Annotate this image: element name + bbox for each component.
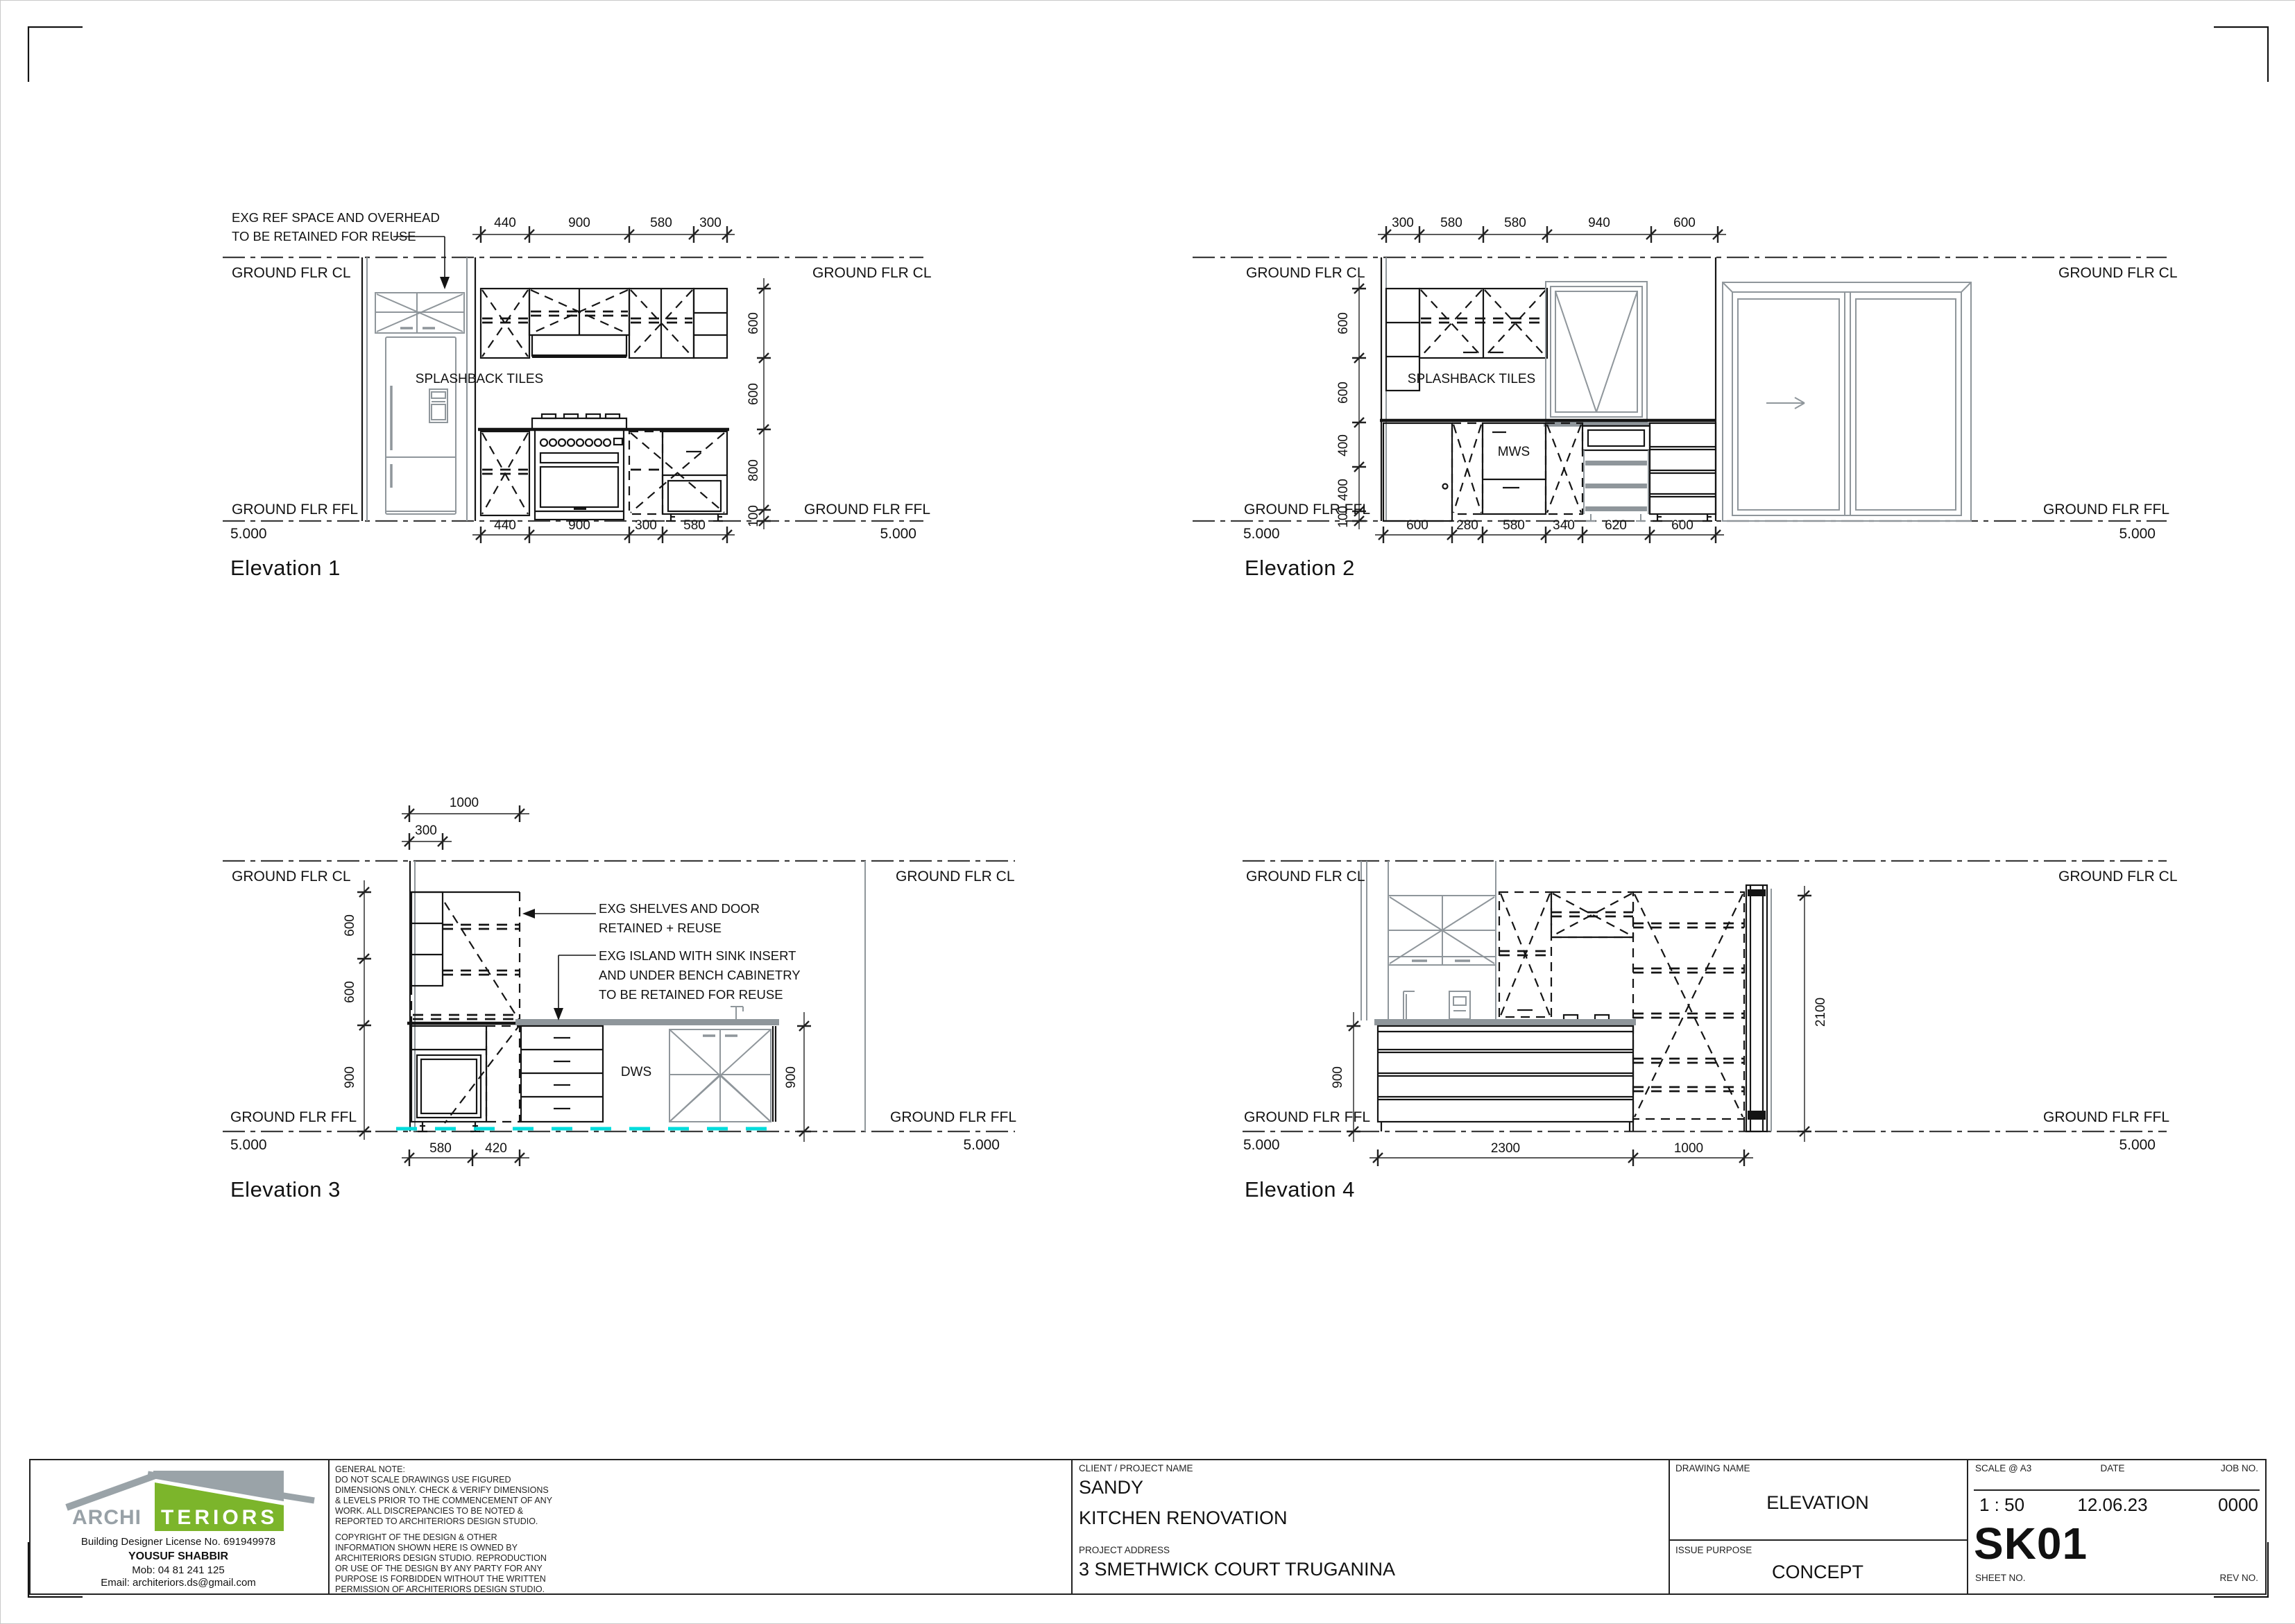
logo-mobile: Mob: 04 81 241 125 [46,1564,310,1576]
elev4-cl-label-left: GROUND FLR CL [1246,869,1365,885]
elev2-top-dim: 940 [1588,216,1610,231]
elev4-title: Elevation 4 [1245,1177,1355,1202]
logo-text-teriors: TERIORS [161,1506,278,1530]
elev1-side-dim: 600 [746,383,762,405]
elev3-note-island-line3: TO BE RETAINED FOR REUSE [599,987,783,1002]
elev2-cl-label-right: GROUND FLR CL [2058,265,2178,282]
elev3-dim-300: 300 [415,823,437,839]
logo-text-archi: ARCHI [72,1506,142,1530]
elev2-datum-left: 5.000 [1243,526,1280,542]
elev1-side-dim: 100 [746,505,762,527]
date-label: DATE [2100,1463,2124,1474]
elev1-side-dim: 600 [746,312,762,334]
elev1-ffl-label-right: GROUND FLR FFL [804,502,930,518]
elev1-bottom-dim: 900 [568,518,590,533]
elev2-ffl-label-right: GROUND FLR FFL [2043,502,2169,518]
elev2-bottom-dim: 600 [1671,518,1693,533]
logo-designer-name: YOUSUF SHABBIR [46,1550,310,1563]
elev1-note-line2: TO BE RETAINED FOR REUSE [232,229,416,243]
elev3-note-island-line2: AND UNDER BENCH CABINETRY [599,968,801,982]
elev1-note-line1: EXG REF SPACE AND OVERHEAD [232,210,440,225]
elev2-top-dim: 600 [1673,216,1696,231]
elev3-bottom-dim: 580 [429,1141,452,1156]
elev1-bottom-dim: 580 [683,518,706,533]
elev3-side-dim: 900 [343,1066,358,1088]
elev3-dim-1000: 1000 [450,796,479,811]
project-name: KITCHEN RENOVATION [1079,1507,1288,1529]
logo-license: Building Designer License No. 691949978 [46,1536,310,1548]
elev2-ffl-label-left: GROUND FLR FFL [1244,502,1370,518]
elevation-4-linework [1243,861,2167,1166]
elev2-top-dim: 300 [1392,216,1414,231]
elev3-ffl-label-right: GROUND FLR FFL [890,1109,1016,1126]
elev3-title: Elevation 3 [230,1177,341,1202]
logo-email: Email: architeriors.ds@gmail.com [46,1577,310,1589]
elev1-top-dim: 900 [568,216,590,231]
elev4-ffl-label-left: GROUND FLR FFL [1244,1109,1370,1126]
rev-no-label: REV NO. [2219,1573,2258,1584]
elev3-note-shelves-line2: RETAINED + REUSE [599,921,722,935]
elev3-cl-label-left: GROUND FLR CL [232,869,351,885]
elev1-bottom-dim: 300 [635,518,657,533]
elev1-datum-right: 5.000 [880,526,916,542]
elev1-ffl-label-left: GROUND FLR FFL [232,502,358,518]
elev3-note-shelves-line1: EXG SHELVES AND DOOR [599,901,760,916]
copyright-note: COPYRIGHT OF THE DESIGN & OTHERINFORMATI… [335,1532,547,1595]
elev4-ffl-label-right: GROUND FLR FFL [2043,1109,2169,1126]
elev2-splashback-label: SPLASHBACK TILES [1408,372,1535,387]
elev1-cl-label-left: GROUND FLR CL [232,265,351,282]
elev2-side-dim: 600 [1336,312,1351,334]
sheet-no-label: SHEET NO. [1975,1573,2026,1584]
title-block-header-underline [1974,1489,2260,1491]
elev1-title: Elevation 1 [230,556,341,581]
sheet-corner-marks [28,27,2268,1597]
elev4-cl-label-right: GROUND FLR CL [2058,869,2178,885]
elev3-dws-label: DWS [621,1065,651,1080]
elev1-splashback-label: SPLASHBACK TILES [416,372,543,387]
elev2-bottom-dim: 600 [1406,518,1428,533]
issue-purpose-label: ISSUE PURPOSE [1675,1545,1752,1556]
drawing-name: ELEVATION [1669,1492,1967,1514]
elev1-top-dim: 300 [699,216,722,231]
elev1-cl-label-right: GROUND FLR CL [812,265,932,282]
elev2-top-dim: 580 [1440,216,1462,231]
project-address: 3 SMETHWICK COURT TRUGANINA [1079,1559,1395,1580]
elev1-side-dim: 800 [746,459,762,481]
elev2-bottom-dim: 580 [1503,518,1525,533]
elev4-datum-right: 5.000 [2119,1137,2156,1154]
scale-value: 1 : 50 [1979,1495,2024,1516]
elev2-bottom-dim: 280 [1456,518,1478,533]
title-block-divider [1071,1459,1073,1595]
elev4-bottom-dim: 1000 [1674,1141,1703,1156]
elev4-bottom-dim: 2300 [1491,1141,1520,1156]
job-label: JOB NO. [2221,1463,2258,1474]
elev1-bottom-dim: 440 [494,518,516,533]
elev3-ffl-label-left: GROUND FLR FFL [230,1109,357,1126]
elev1-top-dim: 580 [650,216,672,231]
elev2-datum-right: 5.000 [2119,526,2156,542]
elev2-bottom-dim: 620 [1605,518,1627,533]
title-block-divider [328,1459,330,1595]
drawing-name-label: DRAWING NAME [1675,1463,1750,1474]
general-note: GENERAL NOTE:DO NOT SCALE DRAWINGS USE F… [335,1464,552,1527]
elev2-title: Elevation 2 [1245,556,1355,581]
scale-label: SCALE @ A3 [1975,1463,2031,1474]
date-value: 12.06.23 [2077,1495,2147,1516]
job-value: 0000 [2218,1495,2258,1516]
elev2-mws-label: MWS [1498,445,1530,460]
address-label: PROJECT ADDRESS [1079,1545,1170,1556]
elev2-side-dim: 400 [1336,479,1351,501]
elev1-top-dim: 440 [494,216,516,231]
elev3-cl-label-right: GROUND FLR CL [896,869,1015,885]
elev2-side-dim: 400 [1336,434,1351,456]
elev4-datum-left: 5.000 [1243,1137,1280,1154]
elev3-right-dim: 900 [784,1066,799,1088]
client-label: CLIENT / PROJECT NAME [1079,1463,1193,1474]
drawing-sheet: .k{stroke:#141414;stroke-width:2.2;fill:… [0,0,2295,1624]
client-name: SANDY [1079,1477,1143,1498]
elev4-right-dim: 2100 [1814,998,1829,1027]
elev2-bottom-dim: 340 [1553,518,1575,533]
cad-linework: .k{stroke:#141414;stroke-width:2.2;fill:… [1,1,2295,1623]
elev2-top-dim: 580 [1504,216,1526,231]
elev1-datum-left: 5.000 [230,526,267,542]
elev3-bottom-dim: 420 [485,1141,507,1156]
elev3-datum-right: 5.000 [963,1137,1000,1154]
elev3-note-island-line1: EXG ISLAND WITH SINK INSERT [599,948,796,963]
title-block-divider [1669,1539,1967,1541]
elev2-side-dim: 600 [1336,382,1351,404]
sheet-number: SK01 [1974,1519,2088,1570]
title-block-divider [1967,1459,1968,1595]
elev2-cl-label-left: GROUND FLR CL [1246,265,1365,282]
elev3-datum-left: 5.000 [230,1137,267,1154]
elev3-side-dim: 600 [343,981,358,1003]
issue-purpose: CONCEPT [1669,1562,1967,1583]
elev3-side-dim: 600 [343,914,358,937]
elev4-left-dim: 900 [1331,1066,1346,1088]
